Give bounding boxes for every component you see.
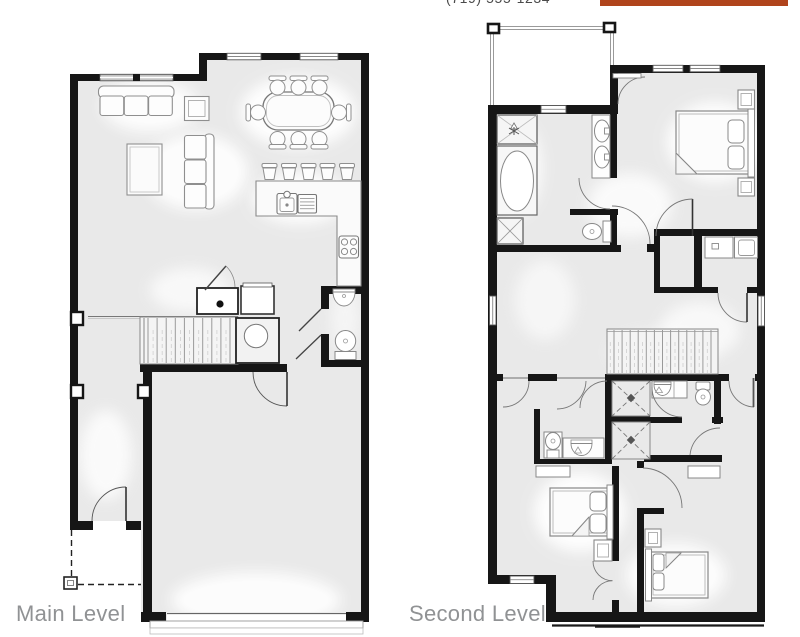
svg-text:Main Level: Main Level — [16, 601, 125, 626]
svg-text:Second Level: Second Level — [409, 601, 546, 626]
svg-text:(719) 555-1234: (719) 555-1234 — [446, 0, 550, 6]
